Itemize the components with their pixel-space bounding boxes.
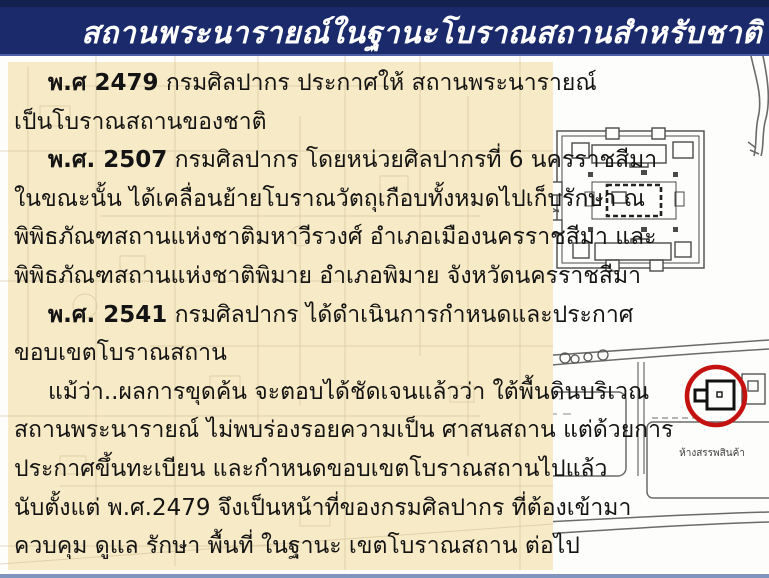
presentation-slide: สถานพระนารายณ์ในฐานะโบราณสถานสำหรับชาติ (0, 0, 769, 578)
slide-title: สถานพระนารายณ์ในฐานะโบราณสถานสำหรับชาติ (0, 7, 769, 57)
text-line: พ.ศ 2479 กรมศิลปากร ประกาศให้ สถานพระนาร… (14, 64, 554, 103)
line-text: พิพิธภัณฑสถานแห่งชาติพิมาย อำเภอพิมาย จั… (14, 263, 641, 289)
line-text: เป็นโบราณสถานของชาติ (14, 109, 267, 135)
line-text: กรมศิลปากร ได้ดำเนินการกำหนดและประกาศ (167, 302, 633, 328)
line-text: ขอบเขตโบราณสถาน (14, 340, 227, 366)
text-line: พิพิธภัณฑสถานแห่งชาติมหาวีรวงศ์ อำเภอเมื… (14, 218, 554, 257)
text-line: นับตั้งแต่ พ.ศ.2479 จึงเป็นหน้าที่ของกรม… (14, 489, 554, 528)
line-text: แม้ว่า..ผลการขุดค้น จะตอบได้ชัดเจนแล้วว่… (48, 379, 649, 405)
text-line: แม้ว่า..ผลการขุดค้น จะตอบได้ชัดเจนแล้วว่… (14, 373, 554, 412)
year-label: พ.ศ. 2507 (48, 147, 167, 173)
bottom-edge-bar (0, 574, 769, 578)
text-line: พ.ศ. 2541 กรมศิลปากร ได้ดำเนินการกำหนดแล… (14, 296, 554, 335)
text-line: ในขณะนั้น ได้เคลื่อนย้ายโบราณวัตถุเกือบท… (14, 180, 554, 219)
year-label: พ.ศ. 2541 (48, 302, 167, 328)
department-store-label: ห้างสรรพสินค้า (679, 447, 745, 459)
text-line: เป็นโบราณสถานของชาติ (14, 103, 554, 142)
text-block: พ.ศ 2479 กรมศิลปากร ประกาศให้ สถานพระนาร… (14, 64, 554, 566)
text-line: ประกาศขึ้นทะเบียน และกำหนดขอบเขตโบราณสถา… (14, 450, 554, 489)
line-text: กรมศิลปากร ประกาศให้ สถานพระนารายณ์ (159, 70, 597, 96)
text-line: พิพิธภัณฑสถานแห่งชาติพิมาย อำเภอพิมาย จั… (14, 257, 554, 296)
year-label: พ.ศ 2479 (48, 70, 159, 96)
text-line: ควบคุม ดูแล รักษา พื้นที่ ในฐานะ เขตโบรา… (14, 527, 554, 566)
text-line: พ.ศ. 2507 กรมศิลปากร โดยหน่วยศิลปากรที่ … (14, 141, 554, 180)
line-text: สถานพระนารายณ์ ไม่พบร่องรอยความเป็น ศาสน… (14, 417, 673, 443)
header-bar: สถานพระนารายณ์ในฐานะโบราณสถานสำหรับชาติ (0, 0, 769, 57)
line-text: ในขณะนั้น ได้เคลื่อนย้ายโบราณวัตถุเกือบท… (14, 186, 645, 212)
text-line: ขอบเขตโบราณสถาน (14, 334, 554, 373)
line-text: ควบคุม ดูแล รักษา พื้นที่ ในฐานะ เขตโบรา… (14, 533, 580, 559)
line-text: พิพิธภัณฑสถานแห่งชาติมหาวีรวงศ์ อำเภอเมื… (14, 224, 656, 250)
text-line: สถานพระนารายณ์ ไม่พบร่องรอยความเป็น ศาสน… (14, 411, 554, 450)
line-text: ประกาศขึ้นทะเบียน และกำหนดขอบเขตโบราณสถา… (14, 456, 607, 482)
line-text: นับตั้งแต่ พ.ศ.2479 จึงเป็นหน้าที่ของกรม… (14, 495, 631, 521)
line-text: กรมศิลปากร โดยหน่วยศิลปากรที่ 6 นครราชสี… (167, 147, 657, 173)
